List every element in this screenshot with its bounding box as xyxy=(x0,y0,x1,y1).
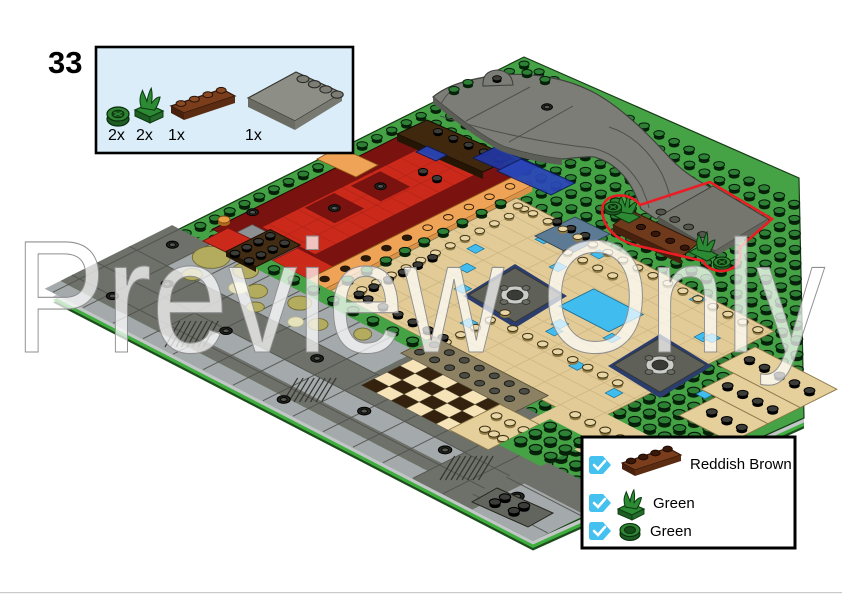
svg-text:Green: Green xyxy=(653,495,695,512)
svg-text:Reddish Brown: Reddish Brown xyxy=(690,456,792,473)
svg-text:1x: 1x xyxy=(245,127,262,144)
svg-text:Green: Green xyxy=(650,523,692,540)
svg-text:33: 33 xyxy=(48,45,82,80)
svg-text:2x: 2x xyxy=(136,127,153,144)
svg-text:1x: 1x xyxy=(168,127,185,144)
svg-text:Preview Only: Preview Only xyxy=(14,207,825,386)
svg-text:2x: 2x xyxy=(108,127,125,144)
